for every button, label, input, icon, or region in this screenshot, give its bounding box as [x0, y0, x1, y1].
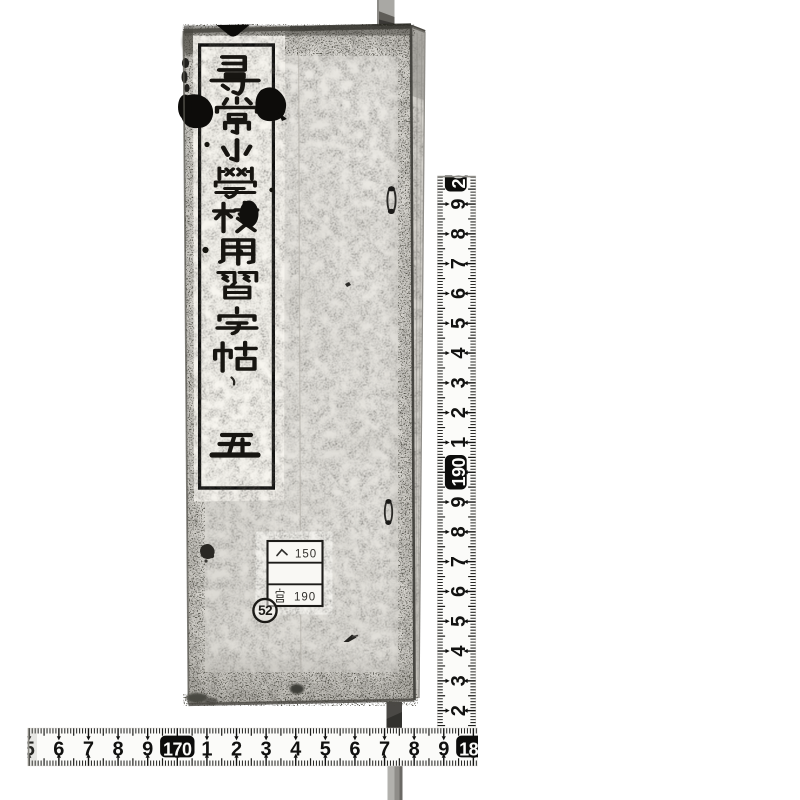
svg-text:9: 9 [438, 739, 449, 761]
svg-text:8: 8 [448, 228, 470, 239]
svg-text:190: 190 [449, 458, 469, 487]
svg-text:170: 170 [163, 740, 192, 760]
svg-text:4: 4 [290, 739, 302, 761]
svg-text:7: 7 [379, 739, 390, 761]
svg-text:3: 3 [261, 739, 272, 761]
svg-text:5: 5 [448, 318, 470, 329]
svg-text:6: 6 [448, 288, 470, 299]
svg-text:8: 8 [448, 526, 470, 537]
svg-text:9: 9 [142, 739, 153, 761]
svg-text:6: 6 [448, 586, 470, 597]
svg-text:7: 7 [448, 258, 470, 269]
svg-text:8: 8 [409, 739, 420, 761]
svg-text:7: 7 [448, 556, 470, 567]
svg-text:6: 6 [53, 739, 64, 761]
svg-text:190: 190 [294, 592, 316, 604]
svg-text:3: 3 [448, 675, 470, 686]
svg-text:5: 5 [320, 739, 331, 761]
svg-text:52: 52 [258, 603, 272, 618]
svg-text:2: 2 [448, 705, 470, 716]
svg-text:2: 2 [448, 407, 470, 418]
svg-text:8: 8 [113, 739, 124, 761]
svg-text:4: 4 [448, 645, 470, 657]
svg-text:1: 1 [448, 437, 470, 448]
svg-text:9: 9 [448, 496, 470, 507]
svg-text:150: 150 [295, 549, 317, 561]
svg-text:7: 7 [83, 739, 94, 761]
svg-text:1: 1 [201, 739, 212, 761]
svg-text:6: 6 [349, 739, 360, 761]
svg-text:3: 3 [448, 377, 470, 388]
svg-text:9: 9 [448, 198, 470, 209]
svg-text:5: 5 [448, 616, 470, 627]
svg-text:4: 4 [448, 347, 470, 359]
svg-text:2: 2 [231, 739, 242, 761]
